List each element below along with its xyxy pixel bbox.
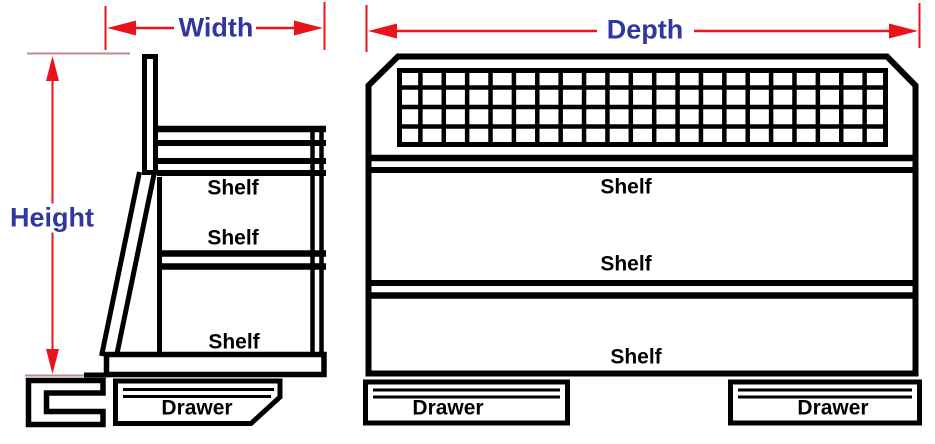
cargo-mesh-grid (397, 68, 888, 146)
width-dimension-label: Width (179, 15, 254, 42)
front-shelf-label-3: Shelf (610, 347, 661, 368)
front-drawer-right-label: Drawer (797, 398, 868, 419)
side-shelf-label-3: Shelf (208, 332, 259, 353)
side-shelf-label-1: Shelf (207, 178, 258, 199)
front-shelf-label-1: Shelf (600, 177, 651, 198)
width-arrowhead-left-icon (107, 21, 136, 36)
diagram-linework (0, 0, 935, 444)
side-shelf-label-2: Shelf (207, 228, 258, 249)
base-rail (107, 355, 325, 375)
height-dimension-label: Height (5, 204, 99, 233)
shelving-unit-diagram: Width Height Depth Shelf Shelf Shelf Dra… (0, 0, 935, 444)
mounting-bracket (29, 381, 104, 425)
width-arrowhead-right-icon (294, 21, 323, 36)
height-arrowhead-bottom-icon (46, 349, 59, 374)
side-view (29, 57, 327, 425)
back-post (145, 57, 156, 173)
depth-arrowhead-right-icon (889, 24, 918, 39)
depth-arrowhead-left-icon (368, 24, 397, 39)
height-arrowhead-top-icon (46, 56, 59, 81)
front-shelf-label-2: Shelf (600, 254, 651, 275)
side-drawer-label: Drawer (161, 398, 232, 419)
depth-dimension-label: Depth (607, 17, 684, 44)
front-drawer-left-label: Drawer (412, 398, 483, 419)
